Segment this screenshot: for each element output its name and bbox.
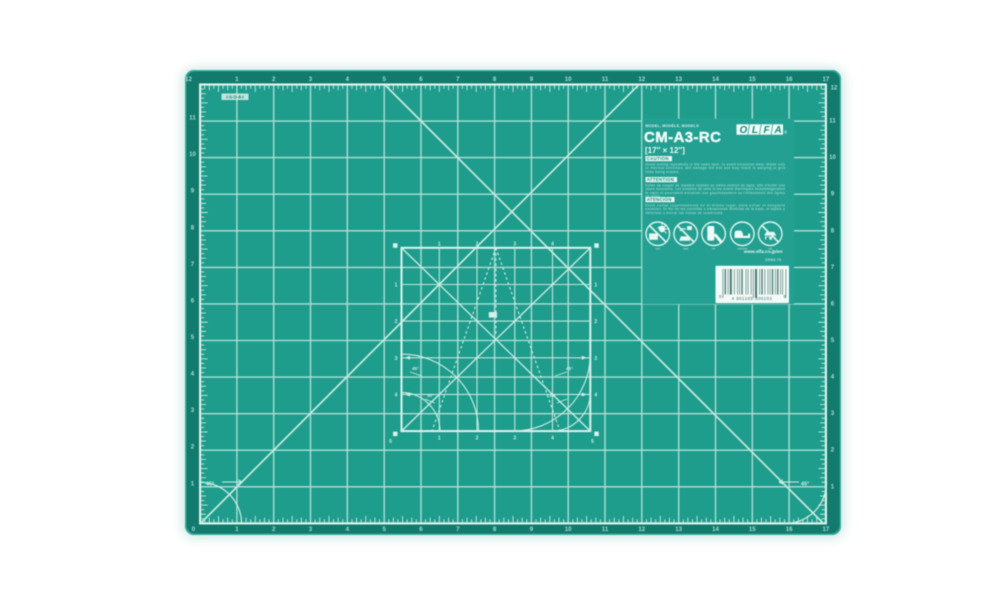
svg-text:10: 10 (565, 526, 572, 533)
svg-text:12: 12 (831, 85, 838, 92)
svg-text:45°: 45° (566, 366, 573, 371)
svg-text:10: 10 (189, 151, 196, 158)
svg-text:[17″ × 12″]: [17″ × 12″] (645, 146, 685, 155)
svg-text:13: 13 (675, 526, 682, 533)
svg-text:1: 1 (395, 283, 398, 289)
svg-text:L: L (752, 125, 758, 136)
svg-text:1: 1 (235, 526, 239, 533)
svg-text:CM-A3-RC: CM-A3-RC (644, 129, 721, 146)
svg-text:15: 15 (749, 526, 756, 533)
svg-text:45°: 45° (801, 482, 809, 488)
svg-text:www.olfa.co.jp/en: www.olfa.co.jp/en (743, 249, 783, 254)
svg-text:3: 3 (513, 241, 516, 247)
svg-text:14: 14 (712, 526, 719, 533)
svg-text:4: 4 (551, 436, 554, 442)
svg-text:ATTENTION: ATTENTION (647, 177, 675, 182)
svg-text:30°: 30° (427, 393, 434, 398)
svg-text:9: 9 (530, 76, 534, 83)
svg-text:45°: 45° (206, 482, 214, 488)
svg-text:17: 17 (823, 526, 830, 533)
svg-text:0: 0 (389, 439, 392, 445)
svg-text:45°: 45° (412, 366, 419, 371)
svg-text:4: 4 (594, 392, 597, 398)
svg-text:MODEL, MODÈLE, MODELO: MODEL, MODÈLE, MODELO (646, 123, 700, 128)
svg-text:4: 4 (395, 392, 398, 398)
svg-text:5: 5 (383, 76, 387, 83)
svg-text:11: 11 (602, 76, 609, 83)
svg-text:10: 10 (829, 154, 836, 161)
svg-text:2: 2 (395, 319, 398, 325)
svg-text:3: 3 (594, 356, 597, 362)
svg-text:ATENCIÓN: ATENCIÓN (647, 197, 672, 202)
svg-text:F: F (763, 125, 770, 136)
svg-text:cut: cut (712, 246, 716, 250)
svg-text:9: 9 (530, 526, 534, 533)
svg-text:A: A (774, 125, 782, 136)
svg-text:12: 12 (638, 76, 645, 83)
svg-text:14: 14 (712, 76, 719, 83)
svg-text:le tapis et pourraient entraîn: le tapis et pourraient entraîner son gau… (646, 191, 786, 195)
svg-text:CAUTION: CAUTION (647, 156, 669, 161)
svg-text:12: 12 (185, 76, 192, 83)
svg-text:I-S-D-8-I: I-S-D-8-I (226, 95, 244, 100)
svg-text:12: 12 (638, 526, 645, 533)
svg-text:2: 2 (594, 319, 597, 325)
svg-text:O: O (739, 125, 747, 136)
svg-text:11: 11 (829, 118, 836, 125)
svg-text:1: 1 (594, 283, 597, 289)
svg-text:15: 15 (749, 76, 756, 83)
svg-text:4 901165 300102: 4 901165 300102 (732, 296, 773, 301)
svg-text:sun: sun (656, 247, 661, 250)
svg-text:5: 5 (591, 439, 594, 445)
svg-text:2: 2 (476, 241, 479, 247)
svg-text:1: 1 (235, 76, 239, 83)
svg-text:2: 2 (272, 76, 276, 83)
svg-text:3: 3 (395, 356, 398, 362)
svg-text:13: 13 (675, 76, 682, 83)
svg-text:2: 2 (272, 526, 276, 533)
svg-text:deformar o borrar las líneas d: deformar o borrar las líneas de cuadrícu… (646, 211, 724, 215)
svg-text:33583-TK: 33583-TK (765, 258, 782, 262)
svg-text:4: 4 (551, 241, 554, 247)
svg-text:3: 3 (513, 436, 516, 442)
svg-text:16: 16 (786, 526, 793, 533)
svg-text:2: 2 (476, 436, 479, 442)
svg-text:1: 1 (438, 241, 441, 247)
svg-text:11: 11 (189, 115, 196, 122)
svg-text:11: 11 (602, 526, 609, 533)
svg-text:17: 17 (823, 76, 830, 83)
svg-text:16: 16 (786, 76, 793, 83)
svg-text:heat: heat (683, 246, 688, 250)
svg-text:lines being erased.: lines being erased. (646, 170, 680, 174)
svg-text:5: 5 (383, 526, 387, 533)
svg-text:30°: 30° (549, 393, 556, 398)
svg-text:1: 1 (438, 436, 441, 442)
svg-text:10: 10 (565, 76, 572, 83)
